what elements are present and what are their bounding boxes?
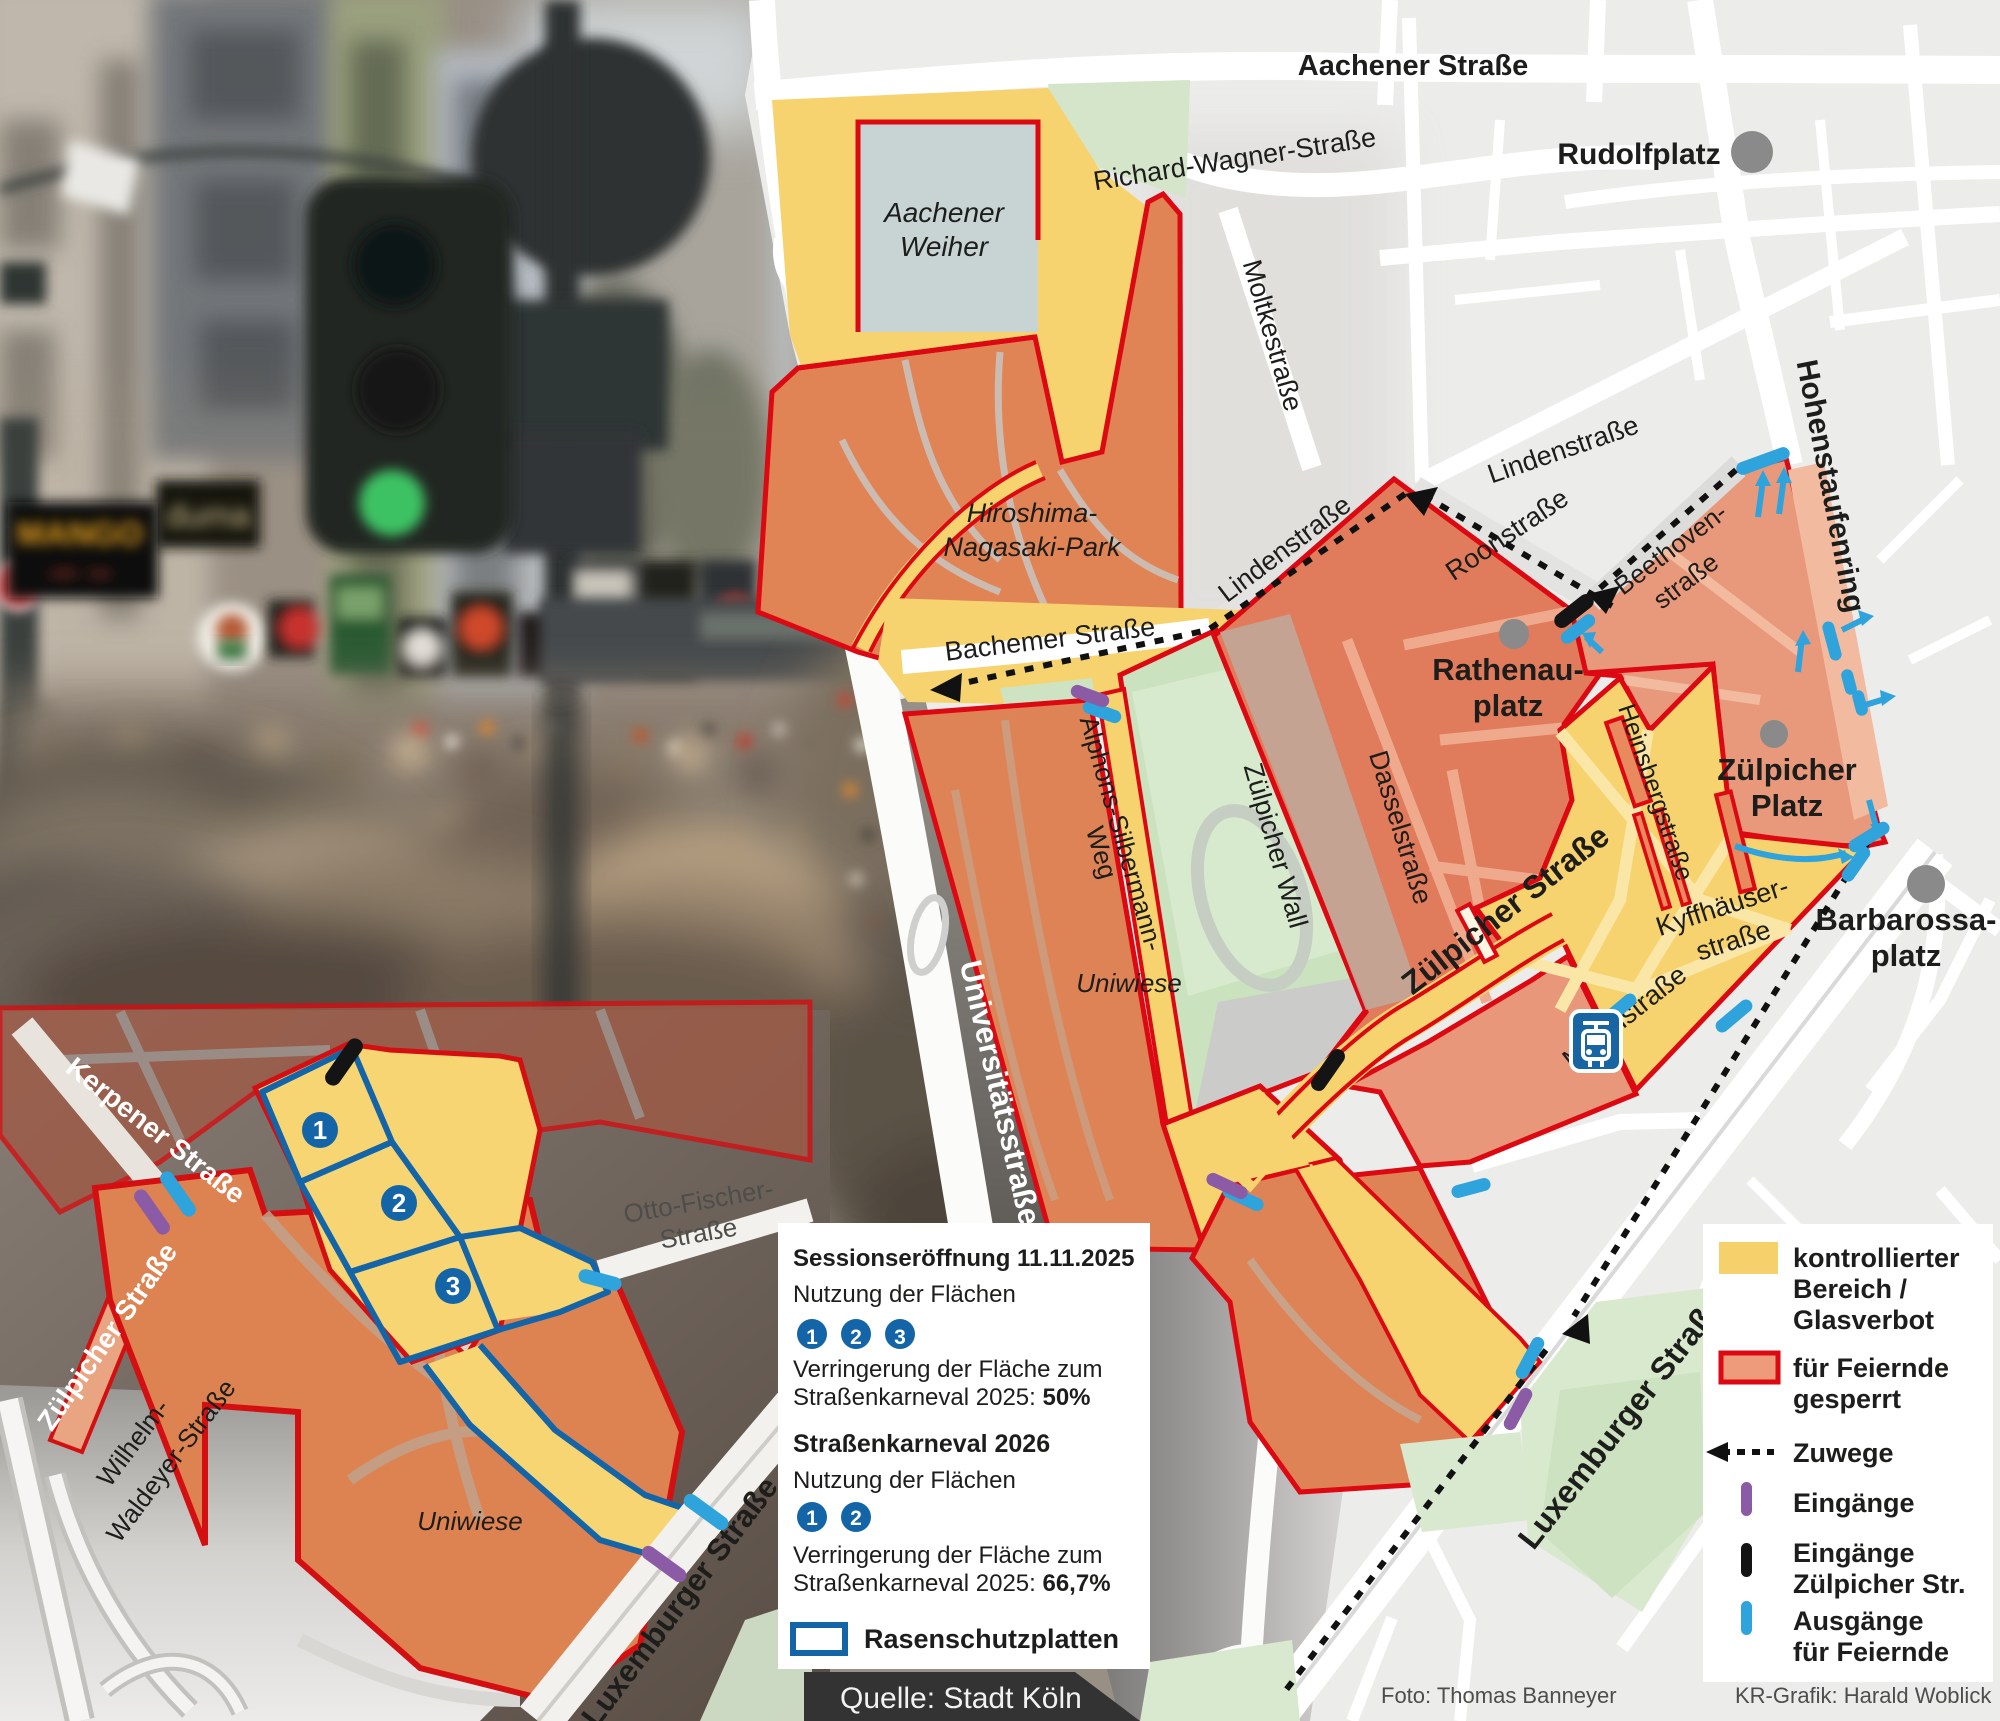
- svg-text:Aachener Straße: Aachener Straße: [1298, 50, 1529, 82]
- svg-text:2: 2: [392, 1188, 406, 1218]
- svg-text:Verringerung der Fläche zum: Verringerung der Fläche zum: [793, 1356, 1103, 1383]
- svg-text:Sessionseröffnung 11.11.2025: Sessionseröffnung 11.11.2025: [793, 1245, 1135, 1272]
- svg-text:3: 3: [446, 1271, 460, 1301]
- svg-text:kontrollierter: kontrollierter: [1793, 1243, 1960, 1273]
- svg-text:duma: duma: [165, 497, 250, 535]
- svg-text:Straßenkarneval 2026: Straßenkarneval 2026: [793, 1430, 1050, 1458]
- svg-text:Eingänge: Eingänge: [1793, 1488, 1915, 1518]
- svg-text:platz: platz: [1473, 688, 1544, 723]
- svg-text:Nutzung der Flächen: Nutzung der Flächen: [793, 1281, 1016, 1308]
- svg-text:Bereich /: Bereich /: [1793, 1274, 1908, 1304]
- svg-text:KR-Grafik: Harald Woblick: KR-Grafik: Harald Woblick: [1735, 1683, 1992, 1708]
- svg-text:1: 1: [806, 1326, 818, 1349]
- svg-text:1: 1: [806, 1507, 818, 1530]
- svg-text:Uniwiese: Uniwiese: [417, 1506, 523, 1536]
- svg-text:Straßenkarneval 2025: 50%: Straßenkarneval 2025: 50%: [793, 1384, 1091, 1411]
- svg-text:Zuwege: Zuwege: [1793, 1438, 1894, 1468]
- svg-text:für Feiernde: für Feiernde: [1793, 1637, 1949, 1667]
- svg-text:2: 2: [850, 1507, 862, 1530]
- svg-text:Barbarossa-: Barbarossa-: [1816, 902, 1997, 937]
- svg-text:Zülpicher Str.: Zülpicher Str.: [1793, 1569, 1966, 1599]
- svg-text:Ausgänge: Ausgänge: [1793, 1606, 1924, 1636]
- svg-text:Zülpicher: Zülpicher: [1717, 752, 1857, 787]
- svg-text:Straßenkarneval 2025: 66,7%: Straßenkarneval 2025: 66,7%: [793, 1570, 1111, 1597]
- svg-text:2: 2: [850, 1326, 862, 1349]
- svg-text:Hiroshima-: Hiroshima-: [967, 498, 1098, 528]
- svg-text:1: 1: [313, 1115, 327, 1145]
- svg-text:Foto: Thomas Banneyer: Foto: Thomas Banneyer: [1381, 1683, 1617, 1708]
- svg-text:Aachener: Aachener: [882, 197, 1006, 228]
- svg-text:Uniwiese: Uniwiese: [1076, 968, 1182, 998]
- svg-text:Weiher: Weiher: [900, 231, 990, 262]
- svg-text:platz: platz: [1871, 938, 1942, 973]
- svg-text:Nutzung der Flächen: Nutzung der Flächen: [793, 1467, 1016, 1494]
- svg-text:Rudolfplatz: Rudolfplatz: [1557, 138, 1720, 171]
- svg-text:cafe - bar: cafe - bar: [48, 565, 111, 582]
- svg-text:Nagasaki-Park: Nagasaki-Park: [943, 532, 1122, 562]
- svg-text:Eingänge: Eingänge: [1793, 1538, 1915, 1568]
- svg-text:Glasverbot: Glasverbot: [1793, 1305, 1934, 1335]
- svg-text:Rasenschutzplatten: Rasenschutzplatten: [864, 1624, 1119, 1654]
- svg-text:gesperrt: gesperrt: [1793, 1384, 1901, 1414]
- svg-text:Platz: Platz: [1751, 788, 1823, 823]
- svg-text:Verringerung der Fläche zum: Verringerung der Fläche zum: [793, 1542, 1103, 1569]
- svg-text:3: 3: [894, 1326, 906, 1349]
- svg-text:MANGO: MANGO: [17, 515, 144, 552]
- svg-text:Quelle: Stadt Köln: Quelle: Stadt Köln: [840, 1682, 1082, 1715]
- svg-text:Rathenau-: Rathenau-: [1432, 652, 1584, 687]
- svg-text:für Feiernde: für Feiernde: [1793, 1353, 1949, 1383]
